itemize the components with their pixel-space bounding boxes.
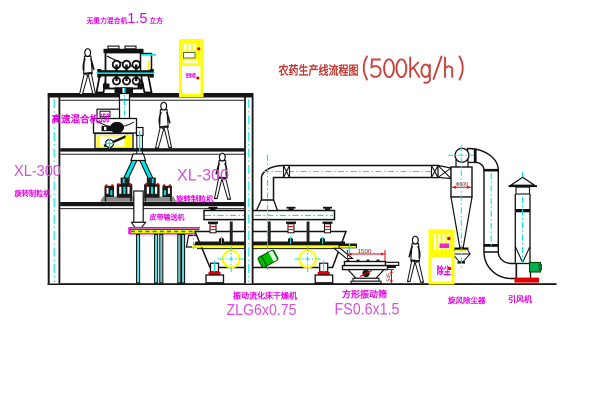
svg-text:除尘: 除尘 bbox=[437, 264, 451, 277]
svg-text:无重力混合机1.5 立方: 无重力混合机1.5 立方 bbox=[86, 11, 164, 27]
svg-text:旋风除尘器: 旋风除尘器 bbox=[447, 295, 486, 305]
svg-text:旋转制粒机: 旋转制粒机 bbox=[14, 189, 52, 198]
svg-text:方形振动筛: 方形振动筛 bbox=[342, 289, 387, 300]
svg-text:旋转制粒机: 旋转制粒机 bbox=[175, 194, 214, 204]
svg-text:农药生产线流程图: 农药生产线流程图 bbox=[278, 63, 359, 78]
svg-text:XL-300: XL-300 bbox=[14, 163, 61, 180]
svg-text:振动流化床干燥机: 振动流化床干燥机 bbox=[233, 291, 297, 301]
svg-text:皮带输送机: 皮带输送机 bbox=[149, 213, 185, 222]
svg-text:ZLG6x0.75: ZLG6x0.75 bbox=[227, 302, 297, 319]
svg-text:引风机: 引风机 bbox=[508, 294, 532, 304]
svg-text:XL-300: XL-300 bbox=[177, 167, 229, 185]
svg-text:545: 545 bbox=[387, 273, 393, 282]
svg-text:FS0.6x1.5: FS0.6x1.5 bbox=[335, 301, 400, 319]
svg-text:控制柜: 控制柜 bbox=[186, 72, 197, 80]
